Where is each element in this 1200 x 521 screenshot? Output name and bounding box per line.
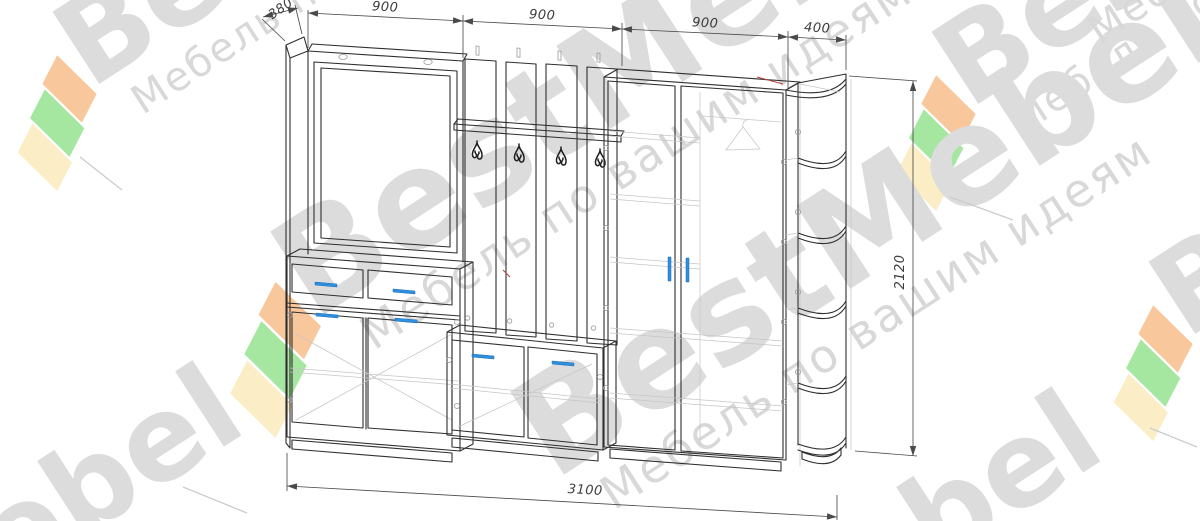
hanger-bracket-icon	[339, 54, 347, 59]
dimension-label-3100: 3100	[567, 482, 603, 499]
door-handle	[472, 354, 494, 359]
wardrobe-door-handle	[686, 258, 689, 282]
dimension-label-900-1: 900	[372, 0, 399, 16]
furniture-drawing-page: BestMebel Мебель по вашим идеям BestMebe…	[0, 0, 1200, 521]
wardrobe-door-handle	[668, 257, 671, 281]
watermark-instance: BestMebel	[0, 338, 265, 521]
hanger-bracket-icon	[424, 59, 432, 64]
brand-watermark-text: BestMebel	[0, 338, 265, 521]
hallway-furniture-technical-drawing: BestMebel Мебель по вашим идеям BestMebe…	[0, 0, 1200, 521]
dimension-label-2120: 2120	[893, 254, 908, 289]
dimension-label-900-3: 900	[692, 15, 719, 31]
watermark-layer: BestMebel Мебель по вашим идеям BestMebe…	[0, 0, 1200, 521]
dimension-label-400: 400	[804, 20, 831, 36]
dimension-label-900-2: 900	[529, 7, 556, 23]
